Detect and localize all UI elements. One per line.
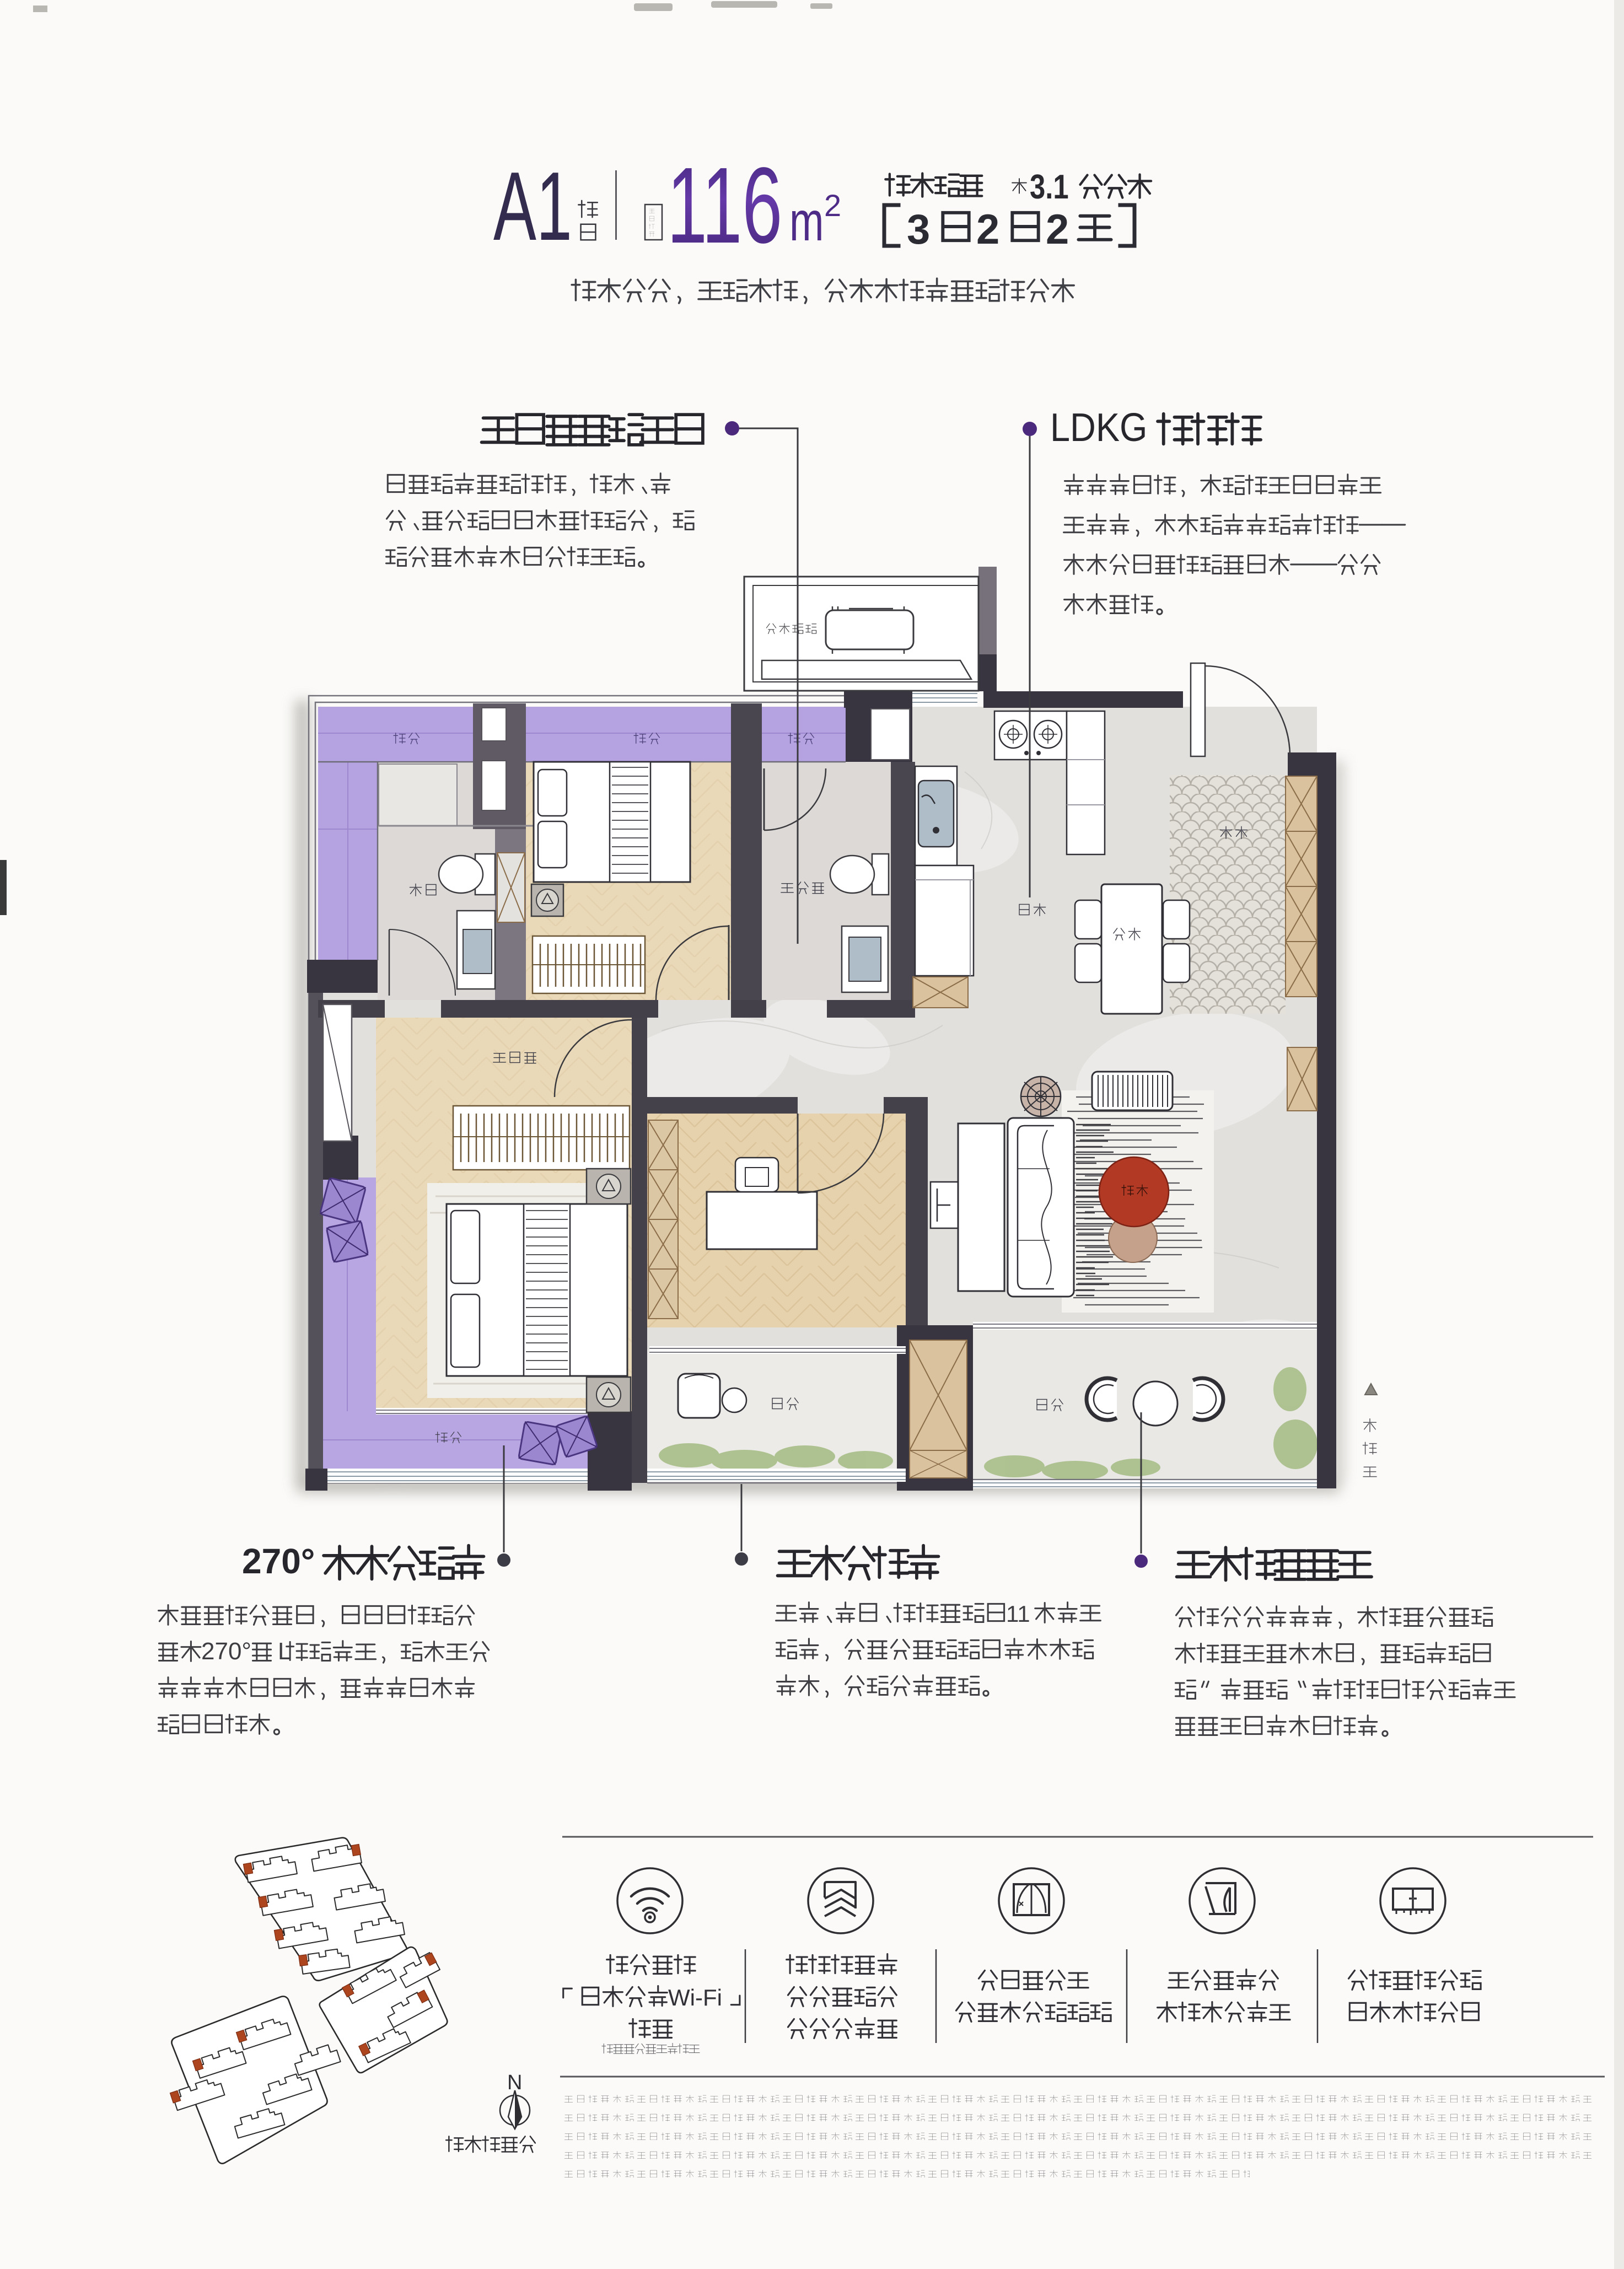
svg-text:3.1: 3.1 <box>1030 168 1069 206</box>
svg-text:116: 116 <box>667 146 782 266</box>
svg-text:LDKG: LDKG <box>1050 405 1147 450</box>
svg-text:270°: 270° <box>242 1541 315 1581</box>
svg-text:3: 3 <box>907 206 930 253</box>
svg-text:A1: A1 <box>493 151 572 260</box>
svg-text:Wi-Fi: Wi-Fi <box>668 1985 722 2010</box>
svg-text:11: 11 <box>1006 1601 1030 1627</box>
svg-text:2: 2 <box>824 188 841 223</box>
svg-text:2: 2 <box>1046 206 1069 253</box>
svg-text:270°: 270° <box>201 1638 251 1665</box>
svg-text:m: m <box>789 190 824 252</box>
svg-text:2: 2 <box>976 206 999 253</box>
